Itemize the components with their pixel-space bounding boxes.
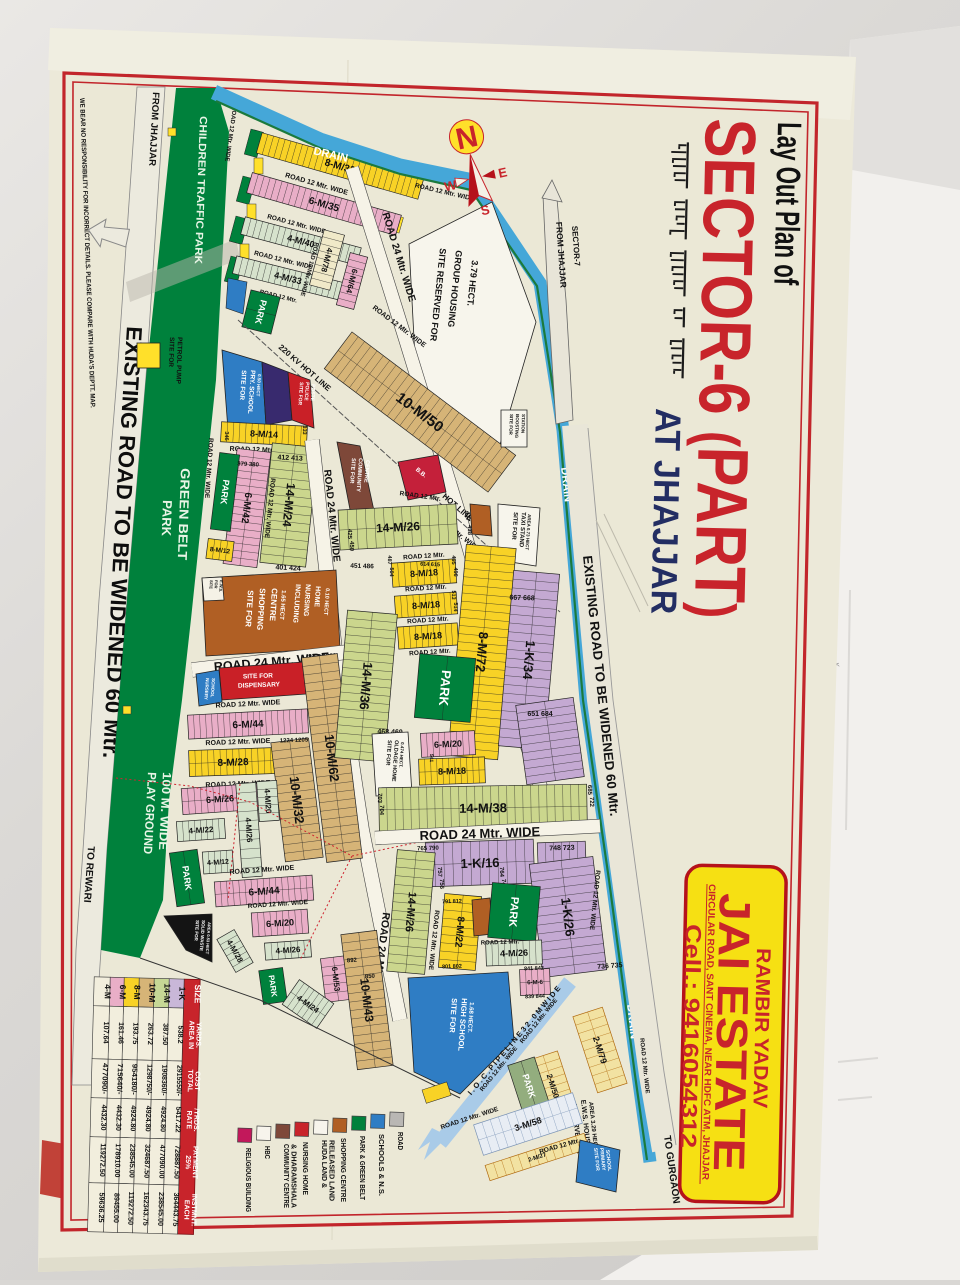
svg-text:AREA IN: AREA IN	[187, 1020, 195, 1049]
svg-text:BOOSTING: BOOSTING	[514, 414, 520, 439]
svg-text:119272.50: 119272.50	[126, 1191, 136, 1225]
svg-text:ROAD: ROAD	[396, 1132, 405, 1150]
svg-text:6-M/20: 6-M/20	[434, 738, 463, 749]
svg-text:703: 703	[376, 793, 382, 804]
svg-text:PAYMENT: PAYMENT	[191, 1146, 199, 1180]
svg-text:PARK: PARK	[436, 669, 454, 707]
svg-text:FOR: FOR	[213, 580, 219, 589]
svg-text:107.64: 107.64	[101, 1021, 111, 1043]
svg-text:4924.80: 4924.80	[144, 1106, 154, 1132]
svg-text:SIZE: SIZE	[193, 984, 203, 1003]
svg-text:364443.75: 364443.75	[171, 1192, 181, 1226]
svg-text:14-M/26: 14-M/26	[376, 519, 421, 535]
svg-text:4-M/20: 4-M/20	[262, 788, 273, 814]
svg-text:8-M/18: 8-M/18	[412, 599, 441, 611]
svg-text:SHOPPING CENTRE: SHOPPING CENTRE	[339, 1138, 348, 1202]
svg-text:4-M/26: 4-M/26	[275, 945, 301, 956]
svg-text:COST: COST	[193, 1071, 201, 1091]
svg-text:GREEN BELT: GREEN BELT	[175, 468, 193, 561]
svg-text:451 486: 451 486	[350, 563, 374, 571]
svg-text:8-M/18: 8-M/18	[414, 630, 443, 642]
svg-text:756: 756	[438, 879, 444, 890]
svg-text:YARDS.: YARDS.	[194, 1022, 202, 1048]
svg-text:757: 757	[436, 867, 442, 878]
svg-text:178910.00: 178910.00	[113, 1143, 123, 1177]
svg-text:850: 850	[365, 974, 376, 981]
svg-text:4-M: 4-M	[103, 984, 113, 999]
svg-text:8-M/14: 8-M/14	[250, 428, 279, 439]
svg-text:Lay Out Plan of: Lay Out Plan of	[766, 122, 808, 286]
svg-text:425: 425	[346, 529, 352, 540]
svg-text:324687.50: 324687.50	[142, 1144, 152, 1178]
svg-text:8-M/18: 8-M/18	[438, 766, 466, 777]
svg-text:450: 450	[348, 541, 354, 552]
svg-text:4924.80: 4924.80	[159, 1106, 169, 1132]
svg-text:477090.00: 477090.00	[157, 1145, 167, 1179]
svg-text:496: 496	[452, 567, 458, 576]
svg-text:401 424: 401 424	[275, 564, 301, 572]
svg-text:722: 722	[588, 797, 594, 808]
svg-text:1298750/-: 1298750/-	[145, 1064, 155, 1096]
svg-text:346: 346	[223, 431, 229, 440]
svg-text:4-M/22: 4-M/22	[188, 825, 214, 836]
svg-text:193.75: 193.75	[131, 1022, 141, 1044]
svg-text:791 812: 791 812	[442, 899, 462, 906]
svg-text:& DHARAMSHALA: & DHARAMSHALA	[290, 1144, 299, 1208]
svg-text:SITE FOR: SITE FOR	[167, 337, 175, 368]
svg-text:437: 437	[464, 511, 470, 522]
svg-text:AT JHAJJAR: AT JHAJJAR	[643, 408, 689, 615]
svg-text:333: 333	[301, 425, 307, 434]
svg-text:RELEASED LAND: RELEASED LAND	[328, 1140, 337, 1201]
svg-text:801 802: 801 802	[442, 964, 462, 971]
svg-text:504: 504	[388, 567, 394, 577]
svg-text:685: 685	[586, 785, 592, 796]
svg-text:954180/-: 954180/-	[130, 1064, 140, 1096]
svg-text:6-M: 6-M	[118, 985, 128, 1000]
svg-text:538.2: 538.2	[176, 1025, 185, 1043]
svg-text:14-M: 14-M	[162, 983, 173, 1003]
svg-text:1908360/-: 1908360/-	[160, 1065, 170, 1097]
svg-text:387.50: 387.50	[161, 1023, 171, 1045]
svg-text:412 413: 412 413	[277, 454, 303, 462]
svg-text:2915550/-: 2915550/-	[175, 1065, 185, 1097]
svg-text:764: 764	[498, 867, 504, 878]
svg-text:4-M/26: 4-M/26	[500, 948, 528, 959]
svg-text:6-M/26: 6-M/26	[206, 793, 235, 805]
svg-text:HBC: HBC	[263, 1146, 272, 1159]
svg-text:715640/-: 715640/-	[115, 1063, 125, 1095]
svg-text:59636.25: 59636.25	[97, 1192, 107, 1222]
svg-text:1224 1205: 1224 1205	[280, 737, 309, 744]
svg-text:892: 892	[347, 958, 358, 965]
svg-text:704: 704	[378, 805, 384, 816]
svg-text:495: 495	[450, 555, 456, 564]
svg-text:6-M/20: 6-M/20	[266, 917, 295, 929]
svg-text:614 615: 614 615	[420, 562, 440, 569]
svg-text:4924.80: 4924.80	[129, 1105, 139, 1131]
svg-text:RELIGIOUS BUILDING: RELIGIOUS BUILDING	[244, 1148, 253, 1212]
svg-text:667 668: 667 668	[509, 595, 535, 603]
svg-text:NURSING HOME: NURSING HOME	[301, 1142, 310, 1195]
svg-text:HOME: HOME	[313, 586, 321, 608]
svg-text:PARK & GREEN BELT: PARK & GREEN BELT	[358, 1136, 367, 1201]
svg-text:4432.30: 4432.30	[114, 1105, 124, 1131]
svg-text:651 684: 651 684	[527, 711, 552, 718]
svg-text:8-M: 8-M	[132, 985, 142, 1000]
svg-text:263.72: 263.72	[146, 1023, 156, 1045]
svg-text:SCHOOLS & N.S.: SCHOOLS & N.S.	[377, 1134, 386, 1196]
svg-text:DISPENSARY: DISPENSARY	[238, 681, 281, 689]
svg-text:6-M/44: 6-M/44	[248, 885, 280, 898]
svg-text:161.46: 161.46	[116, 1022, 126, 1044]
svg-text:1-K/16: 1-K/16	[460, 855, 500, 871]
svg-text:1-K: 1-K	[177, 987, 187, 1002]
svg-text:6-M-6: 6-M-6	[527, 980, 544, 987]
svg-text:379 380: 379 380	[237, 461, 260, 468]
svg-text:541: 541	[428, 754, 434, 763]
svg-text:487: 487	[386, 555, 392, 564]
svg-text:119272.50: 119272.50	[98, 1143, 108, 1177]
svg-text:162343.75: 162343.75	[141, 1192, 151, 1226]
svg-text:TOTAL: TOTAL	[186, 1069, 194, 1093]
svg-text:14-M/38: 14-M/38	[459, 800, 507, 816]
svg-text:748 723: 748 723	[549, 845, 575, 853]
svg-text:4432.30: 4432.30	[99, 1104, 109, 1130]
svg-text:238545.00: 238545.00	[156, 1192, 166, 1226]
svg-text:Cell.: 9416054312: Cell.: 9416054312	[676, 924, 706, 1149]
svg-text:238545.00: 238545.00	[127, 1144, 137, 1178]
svg-text:STATION: STATION	[520, 414, 526, 433]
svg-text:25%: 25%	[184, 1155, 191, 1170]
svg-text:89455.00: 89455.00	[112, 1193, 122, 1223]
svg-text:SECTOR-6 (PART): SECTOR-6 (PART)	[679, 118, 770, 620]
svg-text:INSTMNT.: INSTMNT.	[190, 1194, 198, 1227]
svg-text:POSTE: POSTE	[309, 384, 316, 402]
svg-text:8-M/18: 8-M/18	[410, 567, 439, 579]
svg-text:513: 513	[450, 590, 456, 599]
svg-text:841 842: 841 842	[524, 966, 544, 973]
svg-text:PARK: PARK	[159, 500, 175, 537]
svg-text:8-M/28: 8-M/28	[217, 757, 249, 769]
svg-text:SITE FOR: SITE FOR	[243, 672, 274, 680]
svg-text:5417.22: 5417.22	[174, 1106, 184, 1132]
svg-text:EACH: EACH	[182, 1200, 190, 1220]
svg-text:6-M/44: 6-M/44	[232, 719, 264, 732]
svg-text:10-M: 10-M	[147, 983, 158, 1003]
svg-text:SITE: SITE	[208, 580, 214, 590]
svg-text:477090/-: 477090/-	[100, 1063, 110, 1095]
svg-text:728887.50: 728887.50	[172, 1145, 182, 1179]
svg-text:514: 514	[452, 602, 458, 612]
svg-text:E.W.S.: E.W.S.	[218, 580, 224, 593]
svg-text:SITE FOR: SITE FOR	[508, 414, 514, 436]
svg-text:4-M/26: 4-M/26	[243, 817, 254, 843]
svg-text:/YRDS.: /YRDS.	[192, 1108, 200, 1132]
svg-text:RATE: RATE	[185, 1110, 192, 1129]
